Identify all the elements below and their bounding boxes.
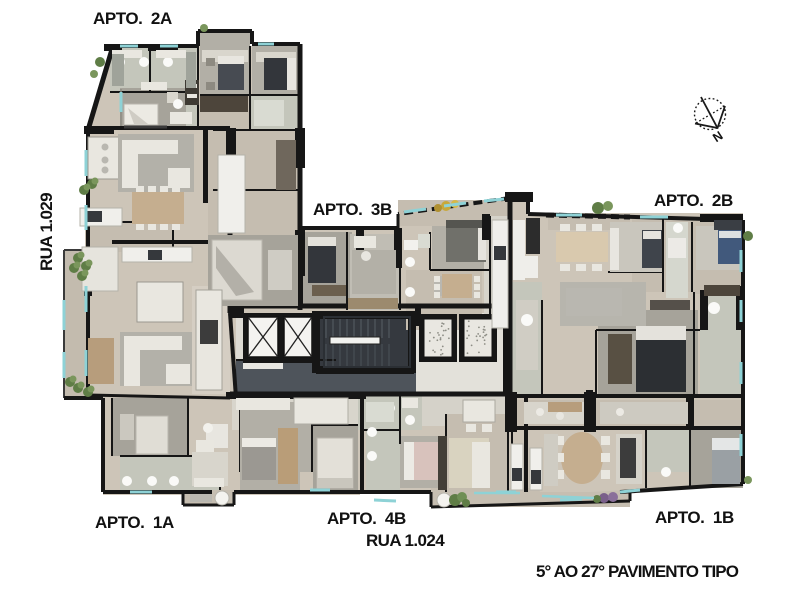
svg-text:APTO. 1B: APTO. 1B — [655, 508, 734, 527]
svg-text:APTO. 2A: APTO. 2A — [93, 9, 172, 28]
svg-text:APTO. 3B: APTO. 3B — [313, 200, 392, 219]
svg-text:APTO. 1A: APTO. 1A — [95, 513, 174, 532]
svg-text:APTO. 4B: APTO. 4B — [327, 509, 406, 528]
svg-text:RUA 1.029: RUA 1.029 — [37, 193, 56, 271]
svg-text:RUA 1.024: RUA 1.024 — [366, 531, 445, 550]
svg-text:5° AO 27° PAVIMENTO TIPO: 5° AO 27° PAVIMENTO TIPO — [536, 562, 739, 581]
svg-text:APTO. 2B: APTO. 2B — [654, 191, 733, 210]
